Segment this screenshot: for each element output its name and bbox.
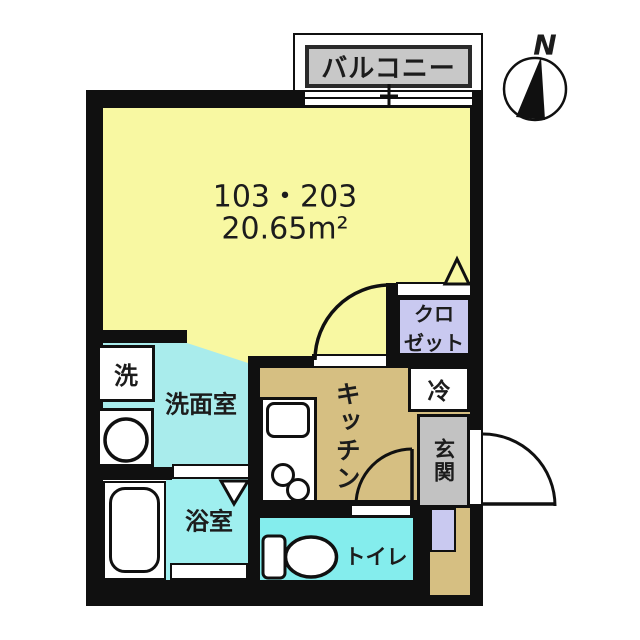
bathroom-counter-strip	[170, 563, 248, 580]
fridge-label: 冷	[428, 372, 451, 406]
balcony-window	[305, 90, 472, 108]
toilet-label: トイレ	[345, 546, 408, 568]
wall-right-upper	[470, 90, 483, 430]
wall-top	[86, 90, 305, 108]
balcony-label: バルコニー	[321, 48, 455, 85]
washroom-label: 洗面室	[165, 392, 237, 417]
kitchen-doorway	[312, 354, 388, 368]
unit-area: 20.65m²	[221, 213, 348, 245]
kitchen-label: キッチン	[333, 381, 359, 493]
entrance-label: 玄関	[429, 438, 459, 484]
toilet-doorway	[350, 504, 412, 517]
wall-washroom-bottom	[86, 467, 172, 480]
closet-door	[396, 282, 472, 297]
washer-label: 洗	[114, 356, 138, 391]
compass-north-label: N	[533, 30, 556, 59]
entrance-door-arc	[483, 434, 555, 506]
wall-kitchen-top	[248, 356, 312, 368]
bathroom-door	[172, 464, 250, 479]
closet-box: クロ ゼット	[396, 296, 472, 357]
floor-plan: バルコニー クロ ゼット 冷 玄関 洗	[0, 0, 640, 640]
shoe-cabinet	[430, 508, 456, 552]
entrance-box: 玄関	[417, 414, 470, 508]
balcony-label-box: バルコニー	[305, 45, 472, 88]
unit-numbers: 103・203	[213, 181, 358, 213]
closet-label-line1: クロ	[414, 298, 454, 327]
kitchen-sink	[266, 402, 310, 438]
closet-label-line2: ゼット	[404, 327, 464, 356]
compass-icon	[504, 57, 566, 120]
wall-mainroom-bottom-left	[86, 330, 187, 343]
bathtub	[109, 487, 160, 573]
wall-toilet-right	[413, 500, 430, 595]
basin-box	[97, 408, 154, 467]
fridge-box: 冷	[408, 366, 470, 412]
washer-box: 洗	[97, 345, 155, 402]
bathroom-label: 浴室	[185, 509, 233, 534]
